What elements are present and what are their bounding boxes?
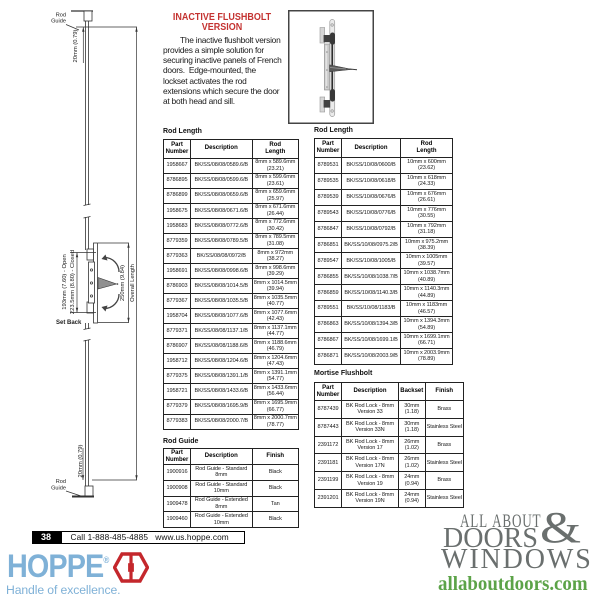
svg-text:Guide: Guide — [51, 486, 66, 492]
svg-text:Guide: Guide — [51, 19, 66, 25]
svg-text:Rod: Rod — [56, 479, 66, 485]
